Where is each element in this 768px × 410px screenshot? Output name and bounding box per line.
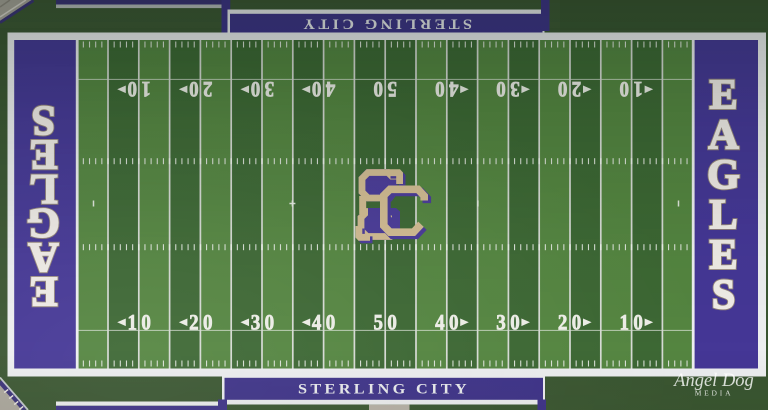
svg-text:MEDIA: MEDIA [695,389,734,398]
